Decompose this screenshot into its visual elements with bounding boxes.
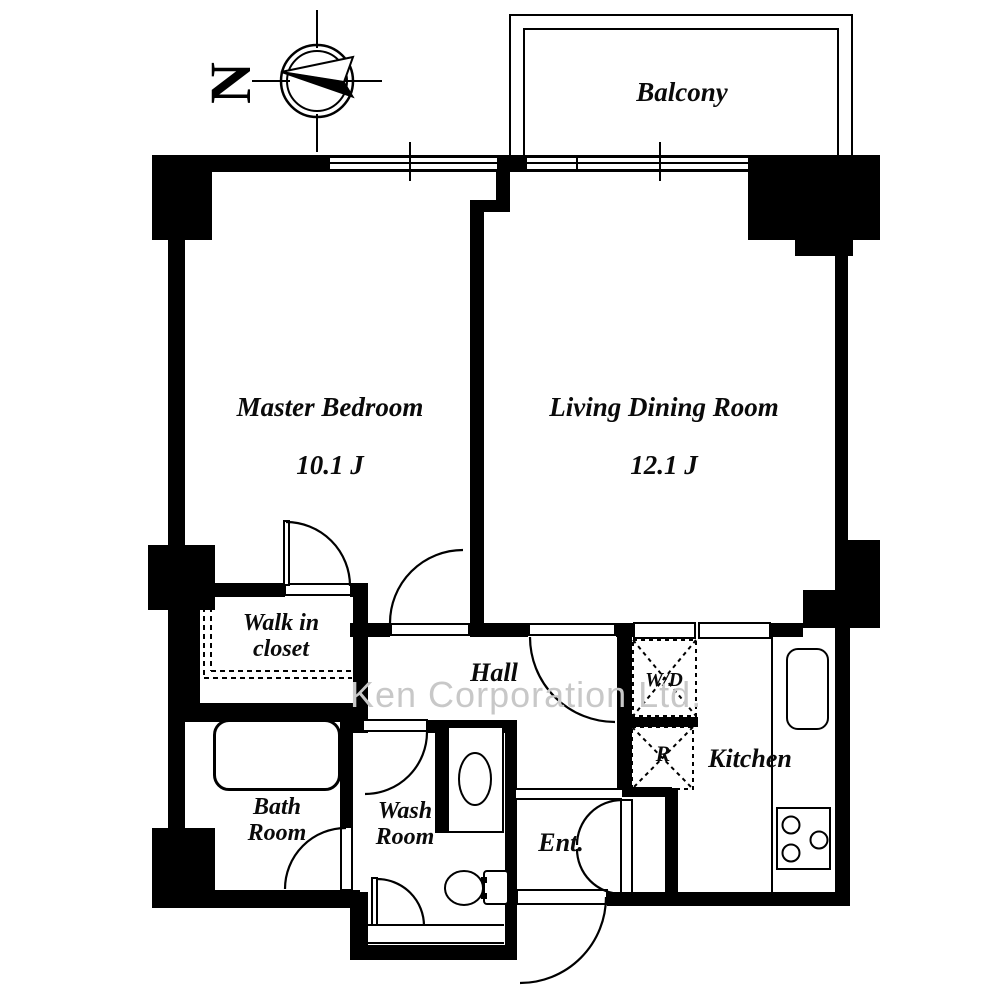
fixtures-layer: N [0, 0, 1000, 1000]
entrance-label: Ent. [511, 829, 611, 857]
compass-north-label: N [198, 62, 263, 104]
kitchen-label: Kitchen [680, 745, 820, 773]
front-door-arc [520, 897, 606, 983]
refrigerator-label: R [633, 742, 693, 766]
bedroom-door-arc [390, 550, 463, 623]
living-dining-size: 12.1 J [514, 451, 814, 480]
living-dining-label: Living Dining Room 12.1 J [514, 364, 814, 510]
compass: N [198, 10, 382, 152]
toilet [445, 871, 508, 905]
walk-in-closet-label: Walk in closet [201, 611, 361, 663]
stove-burners [783, 817, 828, 862]
master-bedroom-size: 10.1 J [180, 451, 480, 480]
vanity-basin [459, 753, 491, 805]
watermark: Ken Corporation Ltd. [350, 674, 702, 716]
washroom-door-arc [365, 732, 427, 794]
floor-plan: N Balcony Master Bedroom 10.1 J Living D… [0, 0, 1000, 1000]
living-dining-name: Living Dining Room [514, 393, 814, 422]
washroom-inner-door-arc [377, 879, 424, 926]
balcony-label: Balcony [580, 78, 784, 107]
master-bedroom-name: Master Bedroom [180, 393, 480, 422]
bath-room-label: Bath Room [197, 795, 357, 847]
master-bedroom-label: Master Bedroom 10.1 J [180, 364, 480, 510]
wash-room-label: Wash Room [335, 799, 475, 851]
closet-door-arc [286, 522, 350, 586]
